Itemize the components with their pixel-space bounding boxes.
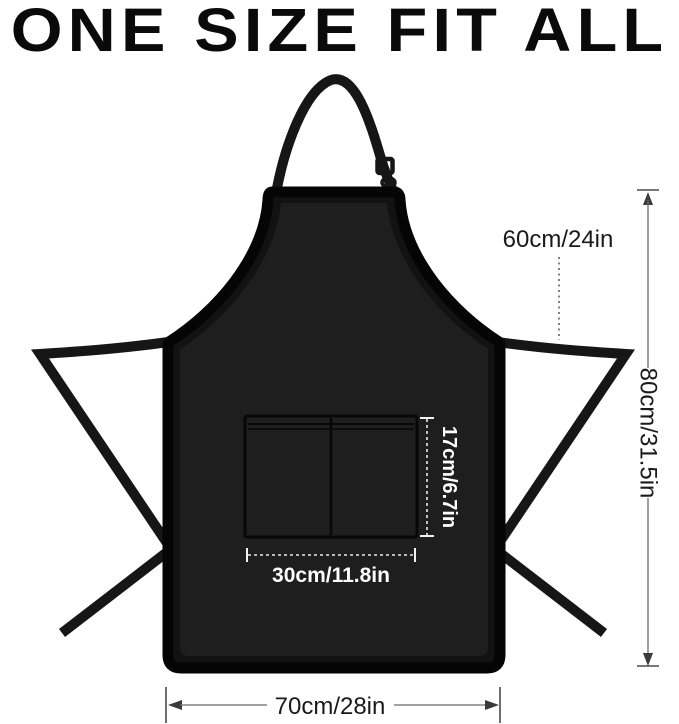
pocket-width-label: 30cm/11.8in [272, 564, 390, 587]
dim-neck-strap: 60cm/24in [503, 226, 614, 340]
arrow-right-icon [485, 700, 499, 710]
apron-size-diagram: ONE SIZE FIT ALL 17cm/6.7in [0, 0, 679, 724]
left-waist-tie [40, 341, 176, 633]
apron-illustration: 17cm/6.7in 30cm/11.8in 60cm/24in 80cm/31… [0, 0, 679, 724]
front-pocket [245, 416, 417, 537]
body-height-label: 80cm/31.5in [635, 368, 662, 499]
right-waist-tie [490, 341, 626, 633]
dim-body-width: 70cm/28in [166, 687, 500, 723]
dim-body-height: 80cm/31.5in [635, 190, 662, 666]
pocket-height-label: 17cm/6.7in [438, 426, 460, 528]
arrow-down-icon [643, 653, 653, 666]
body-width-label: 70cm/28in [275, 693, 386, 720]
neck-strap-label: 60cm/24in [503, 226, 614, 253]
arrow-left-icon [168, 700, 182, 710]
neck-strap [275, 79, 397, 199]
